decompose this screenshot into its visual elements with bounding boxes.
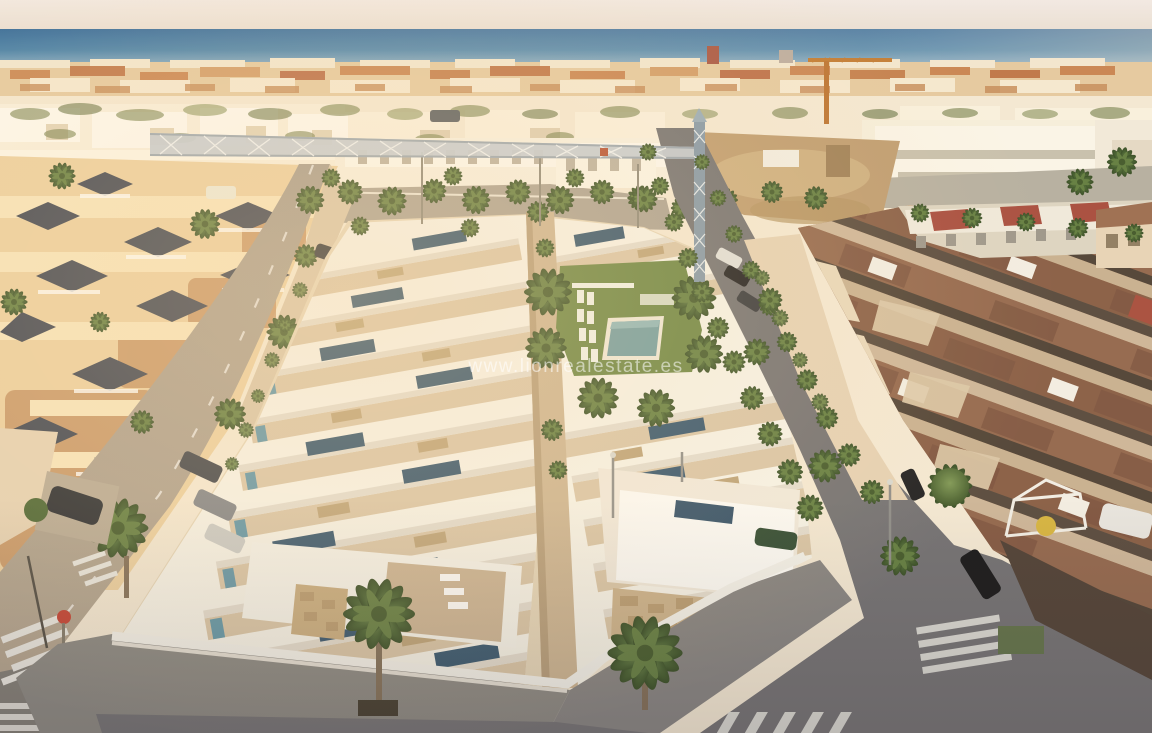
svg-text:www.lionrealestate.es: www.lionrealestate.es [467, 356, 683, 377]
